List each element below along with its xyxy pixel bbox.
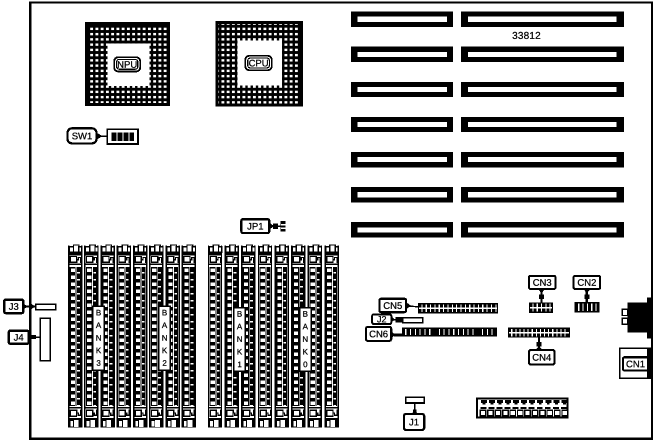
- svg-text:CN3: CN3: [533, 278, 552, 289]
- svg-text:K: K: [162, 346, 168, 355]
- svg-text:CPU: CPU: [249, 58, 269, 69]
- svg-text:N: N: [162, 334, 168, 343]
- svg-text:NPU: NPU: [117, 60, 137, 71]
- svg-text:33812: 33812: [512, 31, 541, 42]
- svg-text:N: N: [96, 334, 102, 343]
- svg-text:JP1: JP1: [247, 221, 263, 232]
- svg-text:A: A: [237, 322, 243, 331]
- svg-text:3: 3: [96, 359, 101, 368]
- svg-text:CN5: CN5: [383, 301, 402, 312]
- svg-text:CN6: CN6: [369, 329, 388, 340]
- svg-text:A: A: [96, 321, 102, 330]
- svg-text:B: B: [303, 310, 308, 319]
- svg-text:B: B: [237, 310, 242, 319]
- svg-text:J4: J4: [14, 333, 24, 344]
- svg-text:B: B: [96, 308, 101, 317]
- svg-text:J3: J3: [9, 302, 19, 313]
- svg-text:N: N: [237, 335, 243, 344]
- svg-text:CN2: CN2: [577, 278, 596, 289]
- svg-text:N: N: [302, 335, 308, 344]
- svg-text:J1: J1: [409, 417, 419, 428]
- svg-text:A: A: [303, 322, 309, 331]
- svg-text:CN1: CN1: [626, 359, 645, 370]
- svg-text:A: A: [162, 321, 168, 330]
- svg-text:CN4: CN4: [532, 353, 551, 364]
- svg-text:K: K: [237, 347, 243, 356]
- svg-text:J2: J2: [377, 314, 387, 324]
- svg-text:0: 0: [303, 360, 308, 369]
- svg-text:2: 2: [162, 359, 167, 368]
- svg-text:SW1: SW1: [72, 131, 93, 142]
- svg-text:1: 1: [237, 360, 242, 369]
- svg-text:B: B: [162, 308, 167, 317]
- svg-text:K: K: [96, 346, 102, 355]
- svg-text:K: K: [303, 347, 309, 356]
